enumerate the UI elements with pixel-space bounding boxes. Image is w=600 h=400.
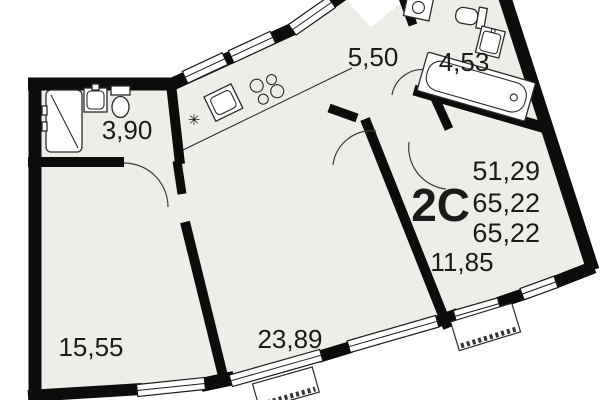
floor-plan-svg: ✳ 3,90 5,50 4,53 15,55 23,89 11,85 2С 51… (0, 0, 600, 400)
summary-living-area: 51,29 (472, 156, 540, 186)
area-label-room-left: 15,55 (58, 332, 123, 362)
summary-total-area-2: 65,22 (472, 218, 540, 248)
area-label-living-kitchen: 23,89 (257, 324, 322, 354)
wall-bottom-chunk-1 (498, 294, 524, 303)
shower-tray (42, 90, 82, 152)
unit-type-label: 2С (411, 179, 470, 231)
toilet-bath-small (111, 86, 130, 118)
area-label-room-right: 11,85 (430, 247, 493, 277)
floor-plan-canvas: ✳ 3,90 5,50 4,53 15,55 23,89 11,85 2С 51… (0, 0, 600, 400)
wall-bottom-left (28, 389, 142, 396)
fridge-symbol: ✳ (188, 112, 201, 129)
area-label-bathroom-small: 3,90 (102, 115, 153, 145)
area-label-hallway: 5,50 (348, 42, 399, 72)
summary-total-area: 65,22 (472, 188, 540, 218)
sink-bath-small (84, 84, 107, 112)
area-label-bathroom-large: 4,53 (439, 47, 490, 77)
wall-corridor-stub (177, 161, 182, 194)
